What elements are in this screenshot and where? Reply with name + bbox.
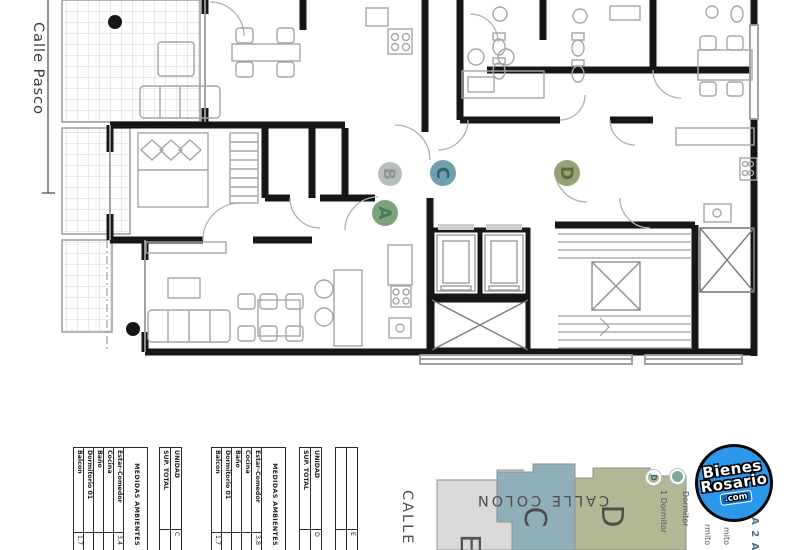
- room-label: Estar-Comedor: [114, 448, 124, 533]
- legend-text-1-dormitorio: 1 Dormitor: [659, 490, 668, 533]
- room-value: [84, 532, 94, 550]
- room-value: 1,7: [74, 532, 84, 550]
- room-label: Baño: [94, 448, 104, 533]
- unidad-table-unit-d: UNIDAD D SUP. TOTAL: [299, 447, 322, 550]
- svg-text:C: C: [517, 507, 552, 528]
- sup-total-value: [160, 530, 171, 550]
- room-label: Baño: [232, 448, 242, 533]
- svg-text:E: E: [454, 534, 487, 550]
- unit-circle-d: D: [554, 160, 580, 186]
- unidad-table-unit-e: E: [335, 447, 358, 550]
- legend-dot-letter: D: [649, 474, 658, 481]
- unidad-label: UNIDAD: [311, 448, 322, 530]
- street-label-calle-west: CALLE: [399, 490, 415, 545]
- room-value: [242, 532, 252, 550]
- medidas-table-unit-c: MEDIDAS AMBIENTES Estar-Comedor 3,4 Coci…: [73, 447, 148, 550]
- elevators: [432, 224, 528, 296]
- room-value: 3,8: [252, 532, 262, 550]
- room-label: Cocina: [104, 448, 114, 533]
- svg-text:A: A: [374, 206, 394, 220]
- svg-text:D: D: [556, 166, 576, 180]
- svg-text:B: B: [380, 168, 399, 180]
- room-value: [94, 532, 104, 550]
- stairs: [558, 234, 692, 348]
- room-label: Dormitorio 01: [222, 448, 232, 533]
- unidad-label: UNIDAD: [171, 448, 182, 530]
- balcony-grids: [62, 0, 200, 332]
- street-label-calle-colon: CALLE COLON: [452, 492, 632, 508]
- legend-text-fragment: mito: [722, 527, 731, 545]
- medidas-table-unit-d: MEDIDAS AMBIENTES Estar-Comedor 3,8 Coci…: [211, 447, 286, 550]
- legend-dot-d: D: [646, 470, 661, 485]
- room-label: Dormitorio 01: [84, 448, 94, 533]
- legend-text-dormitorio: Dormitor: [681, 491, 690, 527]
- room-value: [104, 532, 114, 550]
- room-value: [232, 532, 242, 550]
- keyplan-block-d: [575, 468, 686, 550]
- room-value: [222, 532, 232, 550]
- legend-dot-2: [670, 469, 685, 484]
- medidas-header: MEDIDAS AMBIENTES: [124, 448, 148, 550]
- sup-total-value: [336, 530, 347, 550]
- medidas-header: MEDIDAS AMBIENTES: [262, 448, 286, 550]
- room-label: Balcon: [74, 448, 84, 533]
- svg-text:C: C: [432, 167, 452, 179]
- unit-circle-a: A: [372, 200, 398, 226]
- side-code-text: A 2 A: [749, 517, 760, 550]
- room-value: 1,7: [212, 532, 222, 550]
- sup-total-label: [336, 448, 347, 530]
- unidad-value: C: [171, 530, 182, 550]
- unit-circle-c: C: [430, 160, 456, 186]
- legend-text-fragment: rmito: [703, 524, 712, 545]
- unidad-value: E: [347, 530, 358, 550]
- unit-circle-b: B: [378, 162, 402, 186]
- sup-total-label: SUP. TOTAL: [160, 448, 171, 530]
- room-label: Cocina: [242, 448, 252, 533]
- street-label-calle-pasco: Calle Pasco: [30, 22, 46, 115]
- unidad-value: D: [311, 530, 322, 550]
- sup-total-value: [300, 530, 311, 550]
- sup-total-label: SUP. TOTAL: [300, 448, 311, 530]
- room-label: Estar-Comedor: [252, 448, 262, 533]
- room-value: 3,4: [114, 532, 124, 550]
- unidad-table-unit-c: UNIDAD C SUP. TOTAL: [159, 447, 182, 550]
- floor-plan-sheet: A B C D C D E Calle P: [0, 0, 800, 550]
- unidad-label: [347, 448, 358, 530]
- room-label: Balcon: [212, 448, 222, 533]
- door-arcs: [203, 2, 681, 240]
- unit-markers: A B C D: [372, 160, 580, 226]
